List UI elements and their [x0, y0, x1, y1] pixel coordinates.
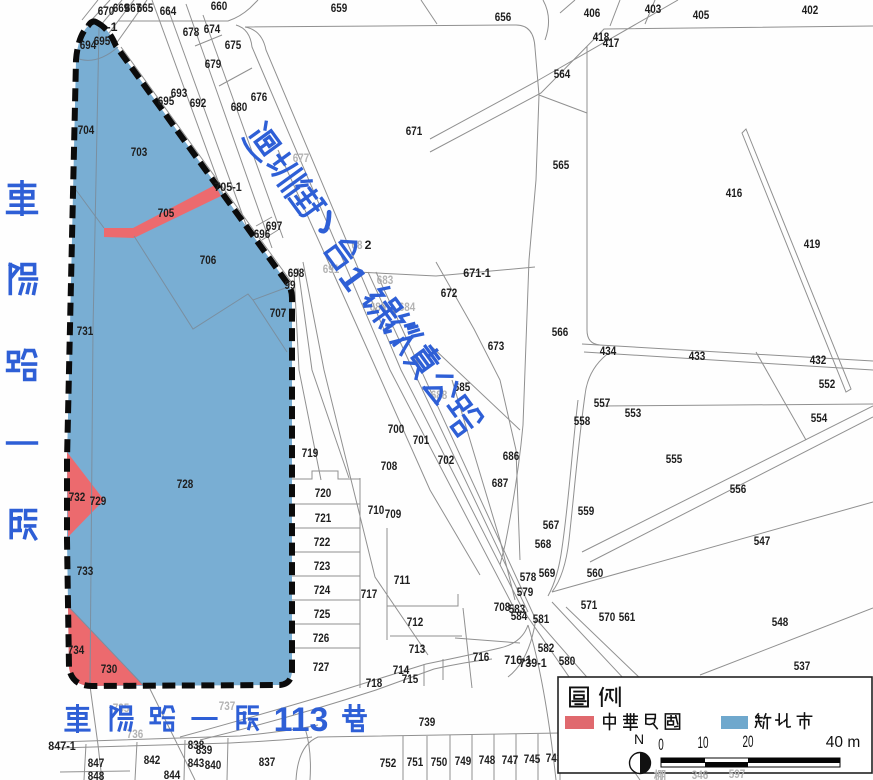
svg-text:737: 737	[219, 699, 236, 713]
svg-text:844: 844	[164, 768, 181, 780]
svg-text:558: 558	[574, 414, 591, 428]
svg-text:687: 687	[492, 476, 509, 490]
svg-text:696: 696	[254, 227, 271, 241]
svg-text:570: 570	[599, 610, 616, 624]
svg-text:842: 842	[144, 753, 161, 767]
svg-text:-1: -1	[107, 20, 118, 34]
svg-text:578: 578	[520, 570, 537, 584]
svg-text:664: 664	[160, 4, 177, 18]
svg-text:584: 584	[511, 609, 528, 623]
svg-text:432: 432	[810, 353, 827, 367]
svg-text:843: 843	[188, 756, 205, 770]
svg-text:734: 734	[68, 643, 85, 657]
svg-text:722: 722	[314, 535, 331, 549]
svg-text:707: 707	[270, 306, 287, 320]
svg-text:571: 571	[581, 598, 598, 612]
svg-text:659: 659	[331, 1, 348, 15]
svg-text:712: 712	[407, 615, 424, 629]
svg-text:731: 731	[77, 324, 94, 338]
svg-text:597: 597	[729, 767, 746, 780]
svg-text:565: 565	[553, 158, 570, 172]
svg-text:403: 403	[645, 2, 662, 16]
svg-text:660: 660	[211, 0, 228, 13]
svg-text:695: 695	[158, 94, 175, 108]
svg-text:692: 692	[190, 96, 207, 110]
svg-text:99: 99	[285, 278, 296, 292]
svg-text:582: 582	[538, 641, 555, 655]
svg-text:728: 728	[177, 477, 194, 491]
svg-text:0: 0	[658, 735, 664, 754]
svg-text:402: 402	[802, 3, 819, 17]
svg-text:580: 580	[559, 654, 576, 668]
svg-text:723: 723	[314, 559, 331, 573]
svg-text:40 m: 40 m	[826, 734, 860, 751]
svg-text:745: 745	[524, 752, 541, 766]
svg-text:701: 701	[413, 433, 430, 447]
svg-text:695: 695	[94, 34, 111, 48]
svg-text:702: 702	[438, 453, 455, 467]
svg-text:672: 672	[441, 286, 458, 300]
svg-text:752: 752	[380, 756, 397, 770]
svg-text:703: 703	[131, 145, 148, 159]
svg-text:847: 847	[88, 756, 105, 770]
svg-text:棚: 棚	[654, 768, 666, 780]
svg-text:717: 717	[361, 587, 378, 601]
svg-text:676: 676	[251, 90, 268, 104]
svg-text:2: 2	[365, 238, 372, 252]
svg-text:708: 708	[381, 459, 398, 473]
svg-text:561: 561	[619, 610, 636, 624]
svg-text:579: 579	[517, 585, 534, 599]
svg-text:713: 713	[409, 642, 426, 656]
svg-text:113: 113	[274, 701, 329, 739]
svg-text:720: 720	[315, 486, 332, 500]
svg-text:581: 581	[533, 612, 550, 626]
svg-text:733: 733	[77, 564, 94, 578]
svg-text:557: 557	[594, 396, 611, 410]
svg-text:725: 725	[314, 607, 331, 621]
svg-text:548: 548	[772, 615, 789, 629]
svg-text:727: 727	[313, 660, 330, 674]
svg-text:847-1: 847-1	[48, 739, 76, 753]
svg-text:706: 706	[200, 253, 217, 267]
svg-text:724: 724	[314, 583, 331, 597]
svg-text:560: 560	[587, 566, 604, 580]
svg-text:710: 710	[368, 503, 385, 517]
svg-text:567: 567	[543, 518, 560, 532]
svg-text:674: 674	[204, 22, 221, 36]
svg-text:721: 721	[315, 511, 332, 525]
svg-text:726: 726	[313, 631, 330, 645]
svg-text:837: 837	[259, 755, 276, 769]
svg-text:750: 750	[431, 755, 448, 769]
svg-text:569: 569	[539, 566, 556, 580]
svg-text:656: 656	[495, 10, 512, 24]
svg-text:671: 671	[406, 124, 423, 138]
svg-text:537: 537	[794, 659, 811, 673]
svg-text:705: 705	[158, 206, 175, 220]
svg-text:748: 748	[479, 753, 496, 767]
svg-text:10: 10	[698, 733, 709, 752]
svg-text:749: 749	[455, 754, 472, 768]
svg-text:719: 719	[302, 446, 319, 460]
svg-text:N: N	[634, 731, 644, 747]
svg-text:568: 568	[535, 537, 552, 551]
svg-text:552: 552	[819, 377, 836, 391]
svg-text:700: 700	[388, 422, 405, 436]
svg-text:732: 732	[69, 490, 86, 504]
svg-text:705-1: 705-1	[214, 180, 242, 194]
svg-text:730: 730	[101, 662, 118, 676]
svg-text:678: 678	[183, 25, 200, 39]
svg-text:675: 675	[225, 38, 242, 52]
svg-text:673: 673	[488, 339, 505, 353]
svg-text:671-1: 671-1	[463, 266, 491, 280]
svg-text:739-1: 739-1	[519, 656, 547, 670]
svg-text:848: 848	[88, 769, 105, 780]
svg-text:416: 416	[726, 186, 743, 200]
svg-text:715: 715	[402, 672, 419, 686]
svg-text:346: 346	[692, 768, 709, 780]
svg-text:554: 554	[811, 411, 828, 425]
svg-text:433: 433	[689, 349, 706, 363]
svg-text:747: 747	[502, 753, 519, 767]
svg-text:718: 718	[366, 676, 383, 690]
svg-text:547: 547	[754, 534, 771, 548]
svg-text:716: 716	[473, 650, 490, 664]
svg-text:406: 406	[584, 6, 601, 20]
svg-text:555: 555	[666, 452, 683, 466]
svg-text:683: 683	[377, 273, 394, 287]
svg-text:711: 711	[394, 573, 411, 587]
svg-text:751: 751	[407, 755, 424, 769]
svg-text:553: 553	[625, 406, 642, 420]
svg-text:419: 419	[804, 237, 821, 251]
svg-text:20: 20	[743, 732, 754, 751]
svg-text:840: 840	[205, 758, 222, 772]
svg-text:434: 434	[600, 344, 617, 358]
svg-text:709: 709	[385, 507, 402, 521]
svg-text:686: 686	[503, 449, 520, 463]
svg-text:729: 729	[90, 494, 107, 508]
svg-text:665: 665	[137, 1, 154, 15]
svg-text:405: 405	[693, 8, 710, 22]
svg-text:556: 556	[730, 482, 747, 496]
svg-text:559: 559	[578, 504, 595, 518]
svg-text:839: 839	[196, 743, 213, 757]
svg-text:417: 417	[603, 36, 620, 50]
svg-text:704: 704	[78, 123, 95, 137]
svg-text:564: 564	[554, 67, 571, 81]
svg-text:680: 680	[231, 100, 248, 114]
svg-text:679: 679	[205, 57, 222, 71]
svg-text:739: 739	[419, 715, 436, 729]
svg-text:566: 566	[552, 325, 569, 339]
svg-text:694: 694	[80, 38, 97, 52]
